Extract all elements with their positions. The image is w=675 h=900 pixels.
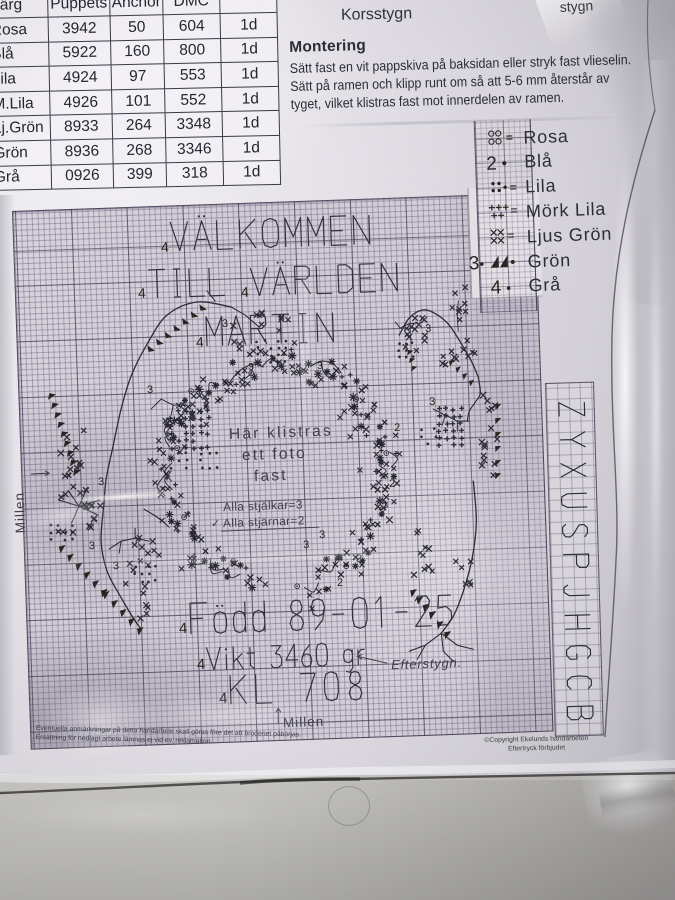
svg-text:4: 4: [490, 277, 502, 298]
svg-text:4: 4: [241, 284, 250, 300]
svg-text:4: 4: [179, 620, 188, 637]
svg-text:2: 2: [486, 153, 497, 174]
svg-text:Alla stjälkar=3: Alla stjälkar=3: [223, 497, 303, 514]
svg-text:2: 2: [394, 422, 401, 434]
svg-text:4: 4: [138, 285, 147, 301]
svg-text:3: 3: [303, 539, 310, 551]
svg-text:3: 3: [429, 396, 436, 408]
svg-text:fast: fast: [254, 467, 288, 485]
svg-text:4: 4: [197, 656, 206, 673]
svg-text:3: 3: [222, 318, 229, 330]
svg-text:Här klistras: Här klistras: [229, 422, 333, 443]
svg-text:3: 3: [98, 476, 105, 488]
svg-text:4: 4: [161, 239, 170, 255]
svg-text:3: 3: [147, 384, 154, 396]
svg-text:Alla stjärnar=2: Alla stjärnar=2: [223, 513, 305, 530]
svg-text:3: 3: [319, 529, 326, 541]
svg-text:3: 3: [89, 540, 96, 552]
svg-text:3: 3: [248, 362, 254, 373]
svg-text:✓: ✓: [211, 518, 221, 530]
svg-text:2: 2: [389, 478, 396, 490]
svg-text:Efterstygn.: Efterstygn.: [391, 655, 462, 672]
svg-text:3: 3: [317, 361, 323, 372]
svg-text:3: 3: [468, 253, 479, 274]
svg-text:4: 4: [196, 334, 205, 350]
svg-text:2: 2: [337, 577, 344, 589]
svg-text:3: 3: [425, 323, 432, 335]
